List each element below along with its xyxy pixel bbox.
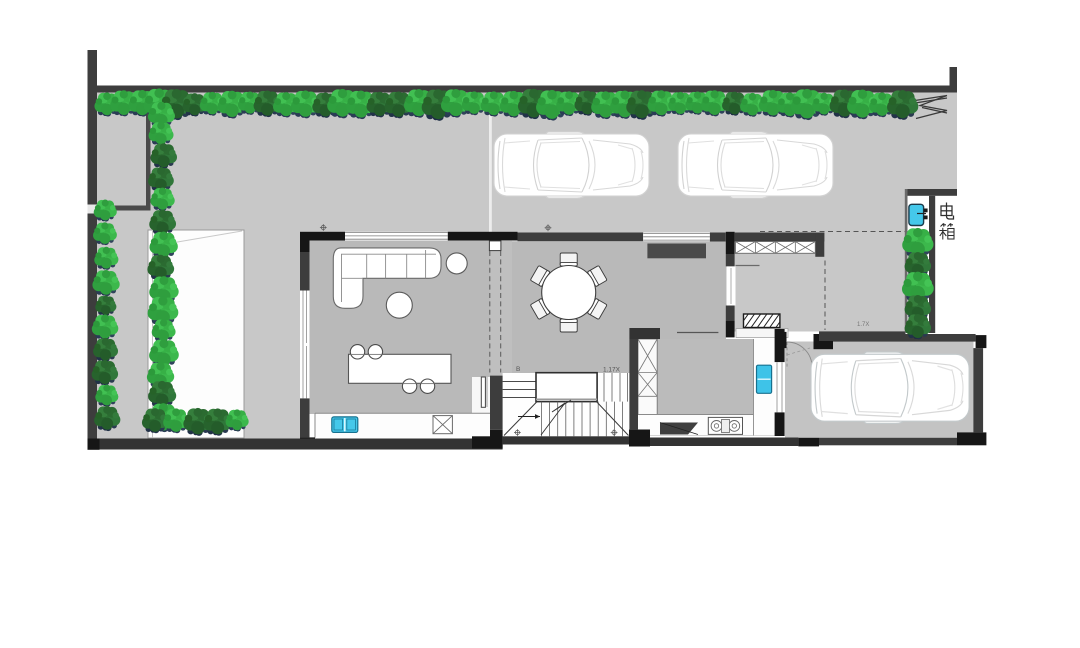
svg-text:1.7X: 1.7X — [857, 322, 869, 328]
svg-text:1.17X: 1.17X — [603, 367, 621, 374]
svg-text:B: B — [516, 366, 520, 373]
